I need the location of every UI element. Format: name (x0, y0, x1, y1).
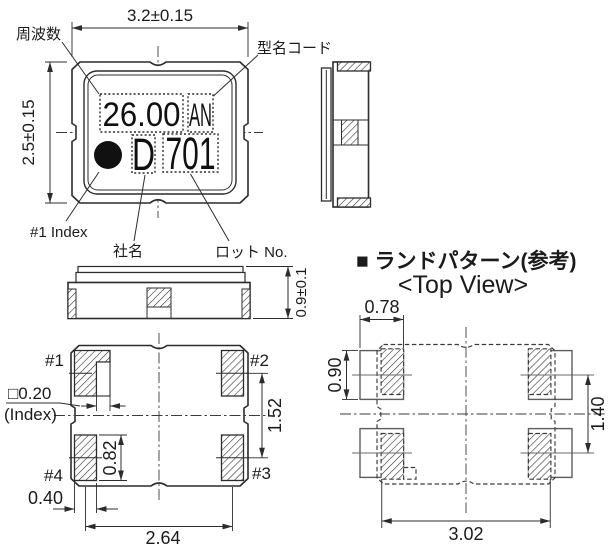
height-dimension-label: 2.5±0.15 (19, 99, 38, 165)
top-terminal-pad (338, 62, 371, 71)
thickness-extension-lines (246, 267, 293, 319)
technical-drawing-canvas: 26.00 AN D 701 3.2±0.15 2.5±0.15 周波数 型名コ… (0, 0, 613, 550)
land-pattern-heading: ■ ランドパターン(参考) (356, 249, 576, 273)
pad-width-dimension-label: 0.40 (28, 488, 63, 508)
pad-4-label: #4 (44, 466, 63, 485)
package-pad-bottom-right (528, 434, 551, 480)
pad-3-label: #3 (252, 464, 271, 483)
package-pad-index-notch-dashed (404, 468, 416, 480)
package-top-view: 26.00 AN D 701 3.2±0.15 2.5±0.15 周波数 型名コ… (16, 6, 332, 261)
land-col-pitch-dimension-label: 3.02 (448, 524, 483, 544)
col-pitch-dimension-label: 2.64 (145, 528, 180, 548)
land-height-dimension-label: 0.90 (325, 357, 345, 392)
seal-ring (76, 273, 245, 283)
company-callout-label: 社名 (113, 243, 143, 260)
marking-company-text: D (132, 129, 155, 180)
pad-2-label: #2 (250, 351, 269, 370)
land-width-dimension-label: 0.78 (364, 297, 399, 317)
row-pitch-dimension-label: 1.52 (265, 398, 285, 433)
index-callout-label: #1 Index (30, 224, 88, 241)
land-pattern-view: 0.78 0.90 1.40 3.02 (325, 297, 608, 544)
pad-1-index-notch (97, 362, 111, 396)
package-pad-top-right (528, 349, 551, 395)
lot-callout-label: ロット No. (215, 244, 288, 261)
notch-dimension-label: □0.20 (8, 384, 51, 403)
width-dimension-label: 3.2±0.15 (127, 6, 193, 25)
model-code-callout-label: 型名コード (257, 40, 332, 57)
package-side-view-right (322, 62, 371, 207)
package-pad-top-left (381, 349, 404, 395)
pin1-index-dot (94, 141, 122, 169)
package-side-view-front: 0.9±0.1 (68, 267, 310, 319)
center-castellation-pad (147, 288, 171, 307)
datasheet-drawing-page: 26.00 AN D 701 3.2±0.15 2.5±0.15 周波数 型名コ… (0, 0, 613, 550)
package-pad-bottom-left (381, 434, 404, 480)
side-castellation-pad (342, 120, 359, 145)
bottom-terminal-pad (338, 198, 371, 207)
marking-lot-text: 701 (166, 128, 216, 179)
package-bottom-view: #1 #2 #3 #4 □0.20 (Index) 0.82 1.52 0.40… (4, 333, 285, 548)
right-terminal-pad (242, 289, 250, 319)
left-terminal-pad (68, 289, 76, 319)
lid-top (78, 267, 243, 273)
index-note-label: (Index) (4, 405, 57, 424)
land-pattern-subheading: <Top View> (398, 271, 528, 299)
pad-1-label: #1 (45, 351, 64, 370)
thickness-dimension-label: 0.9±0.1 (293, 268, 310, 318)
land-row-pitch-dimension-label: 1.40 (588, 396, 608, 431)
width-extension-lines (72, 22, 248, 57)
frequency-callout-label: 周波数 (16, 26, 61, 43)
pad-height-dimension-label: 0.82 (100, 440, 120, 475)
